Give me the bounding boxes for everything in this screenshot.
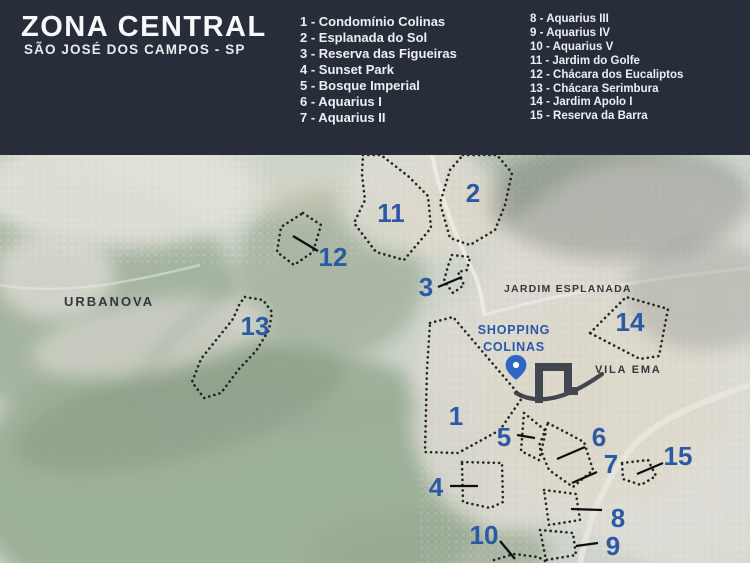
legend-item-9: 9 - Aquarius IV: [530, 27, 683, 41]
map-marker-11: 11: [377, 198, 405, 228]
legend-item-8: 8 - Aquarius III: [530, 13, 683, 27]
legend-item-13: 13 - Chácara Serimbura: [530, 83, 683, 97]
map-marker-9: 9: [606, 531, 620, 561]
label-vila-ema: VILA EMA: [595, 364, 662, 376]
map-marker-15: 15: [664, 441, 693, 471]
map-marker-12: 12: [319, 242, 348, 272]
map-marker-4: 4: [429, 472, 444, 502]
map-marker-13: 13: [241, 311, 270, 341]
legend-item-3: 3 - Reserva das Figueiras: [300, 46, 457, 62]
legend-item-2: 2 - Esplanada do Sol: [300, 30, 457, 46]
map-marker-10: 10: [470, 520, 499, 550]
zona-central-infographic: ZONA CENTRAL SÃO JOSÉ DOS CAMPOS - SP 1 …: [0, 0, 750, 563]
leader-8: [571, 509, 602, 510]
page-title: ZONA CENTRAL: [21, 11, 267, 44]
map-marker-8: 8: [611, 503, 625, 533]
legend-item-12: 12 - Chácara dos Eucaliptos: [530, 69, 683, 83]
legend-item-5: 5 - Bosque Imperial: [300, 78, 457, 94]
header: ZONA CENTRAL SÃO JOSÉ DOS CAMPOS - SP 1 …: [0, 0, 750, 155]
legend-item-10: 10 - Aquarius V: [530, 41, 683, 55]
legend-item-7: 7 - Aquarius II: [300, 110, 457, 126]
map-marker-3: 3: [419, 272, 433, 302]
satellite-map: URBANOVA JARDIM ESPLANADA VILA EMA SHOPP…: [0, 155, 750, 563]
map-marker-5: 5: [497, 422, 511, 452]
shopping-label-line2: COLINAS: [483, 340, 545, 354]
map-marker-14: 14: [616, 307, 645, 337]
legend-item-4: 4 - Sunset Park: [300, 62, 457, 78]
legend-item-15: 15 - Reserva da Barra: [530, 110, 683, 124]
map-marker-2: 2: [466, 178, 480, 208]
legend-item-14: 14 - Jardim Apolo I: [530, 96, 683, 110]
label-jardim-esplanada: JARDIM ESPLANADA: [504, 283, 632, 295]
map-marker-6: 6: [592, 422, 606, 452]
shopping-label-line1: SHOPPING: [478, 323, 550, 337]
map-marker-7: 7: [604, 449, 618, 479]
legend-column-2: 8 - Aquarius III 9 - Aquarius IV 10 - Aq…: [530, 13, 683, 124]
legend-item-11: 11 - Jardim do Golfe: [530, 55, 683, 69]
map-marker-1: 1: [449, 401, 463, 431]
label-urbanova: URBANOVA: [64, 294, 154, 309]
page-subtitle: SÃO JOSÉ DOS CAMPOS - SP: [24, 42, 245, 57]
legend-item-6: 6 - Aquarius I: [300, 94, 457, 110]
legend-column-1: 1 - Condomínio Colinas 2 - Esplanada do …: [300, 14, 457, 126]
legend-item-1: 1 - Condomínio Colinas: [300, 14, 457, 30]
